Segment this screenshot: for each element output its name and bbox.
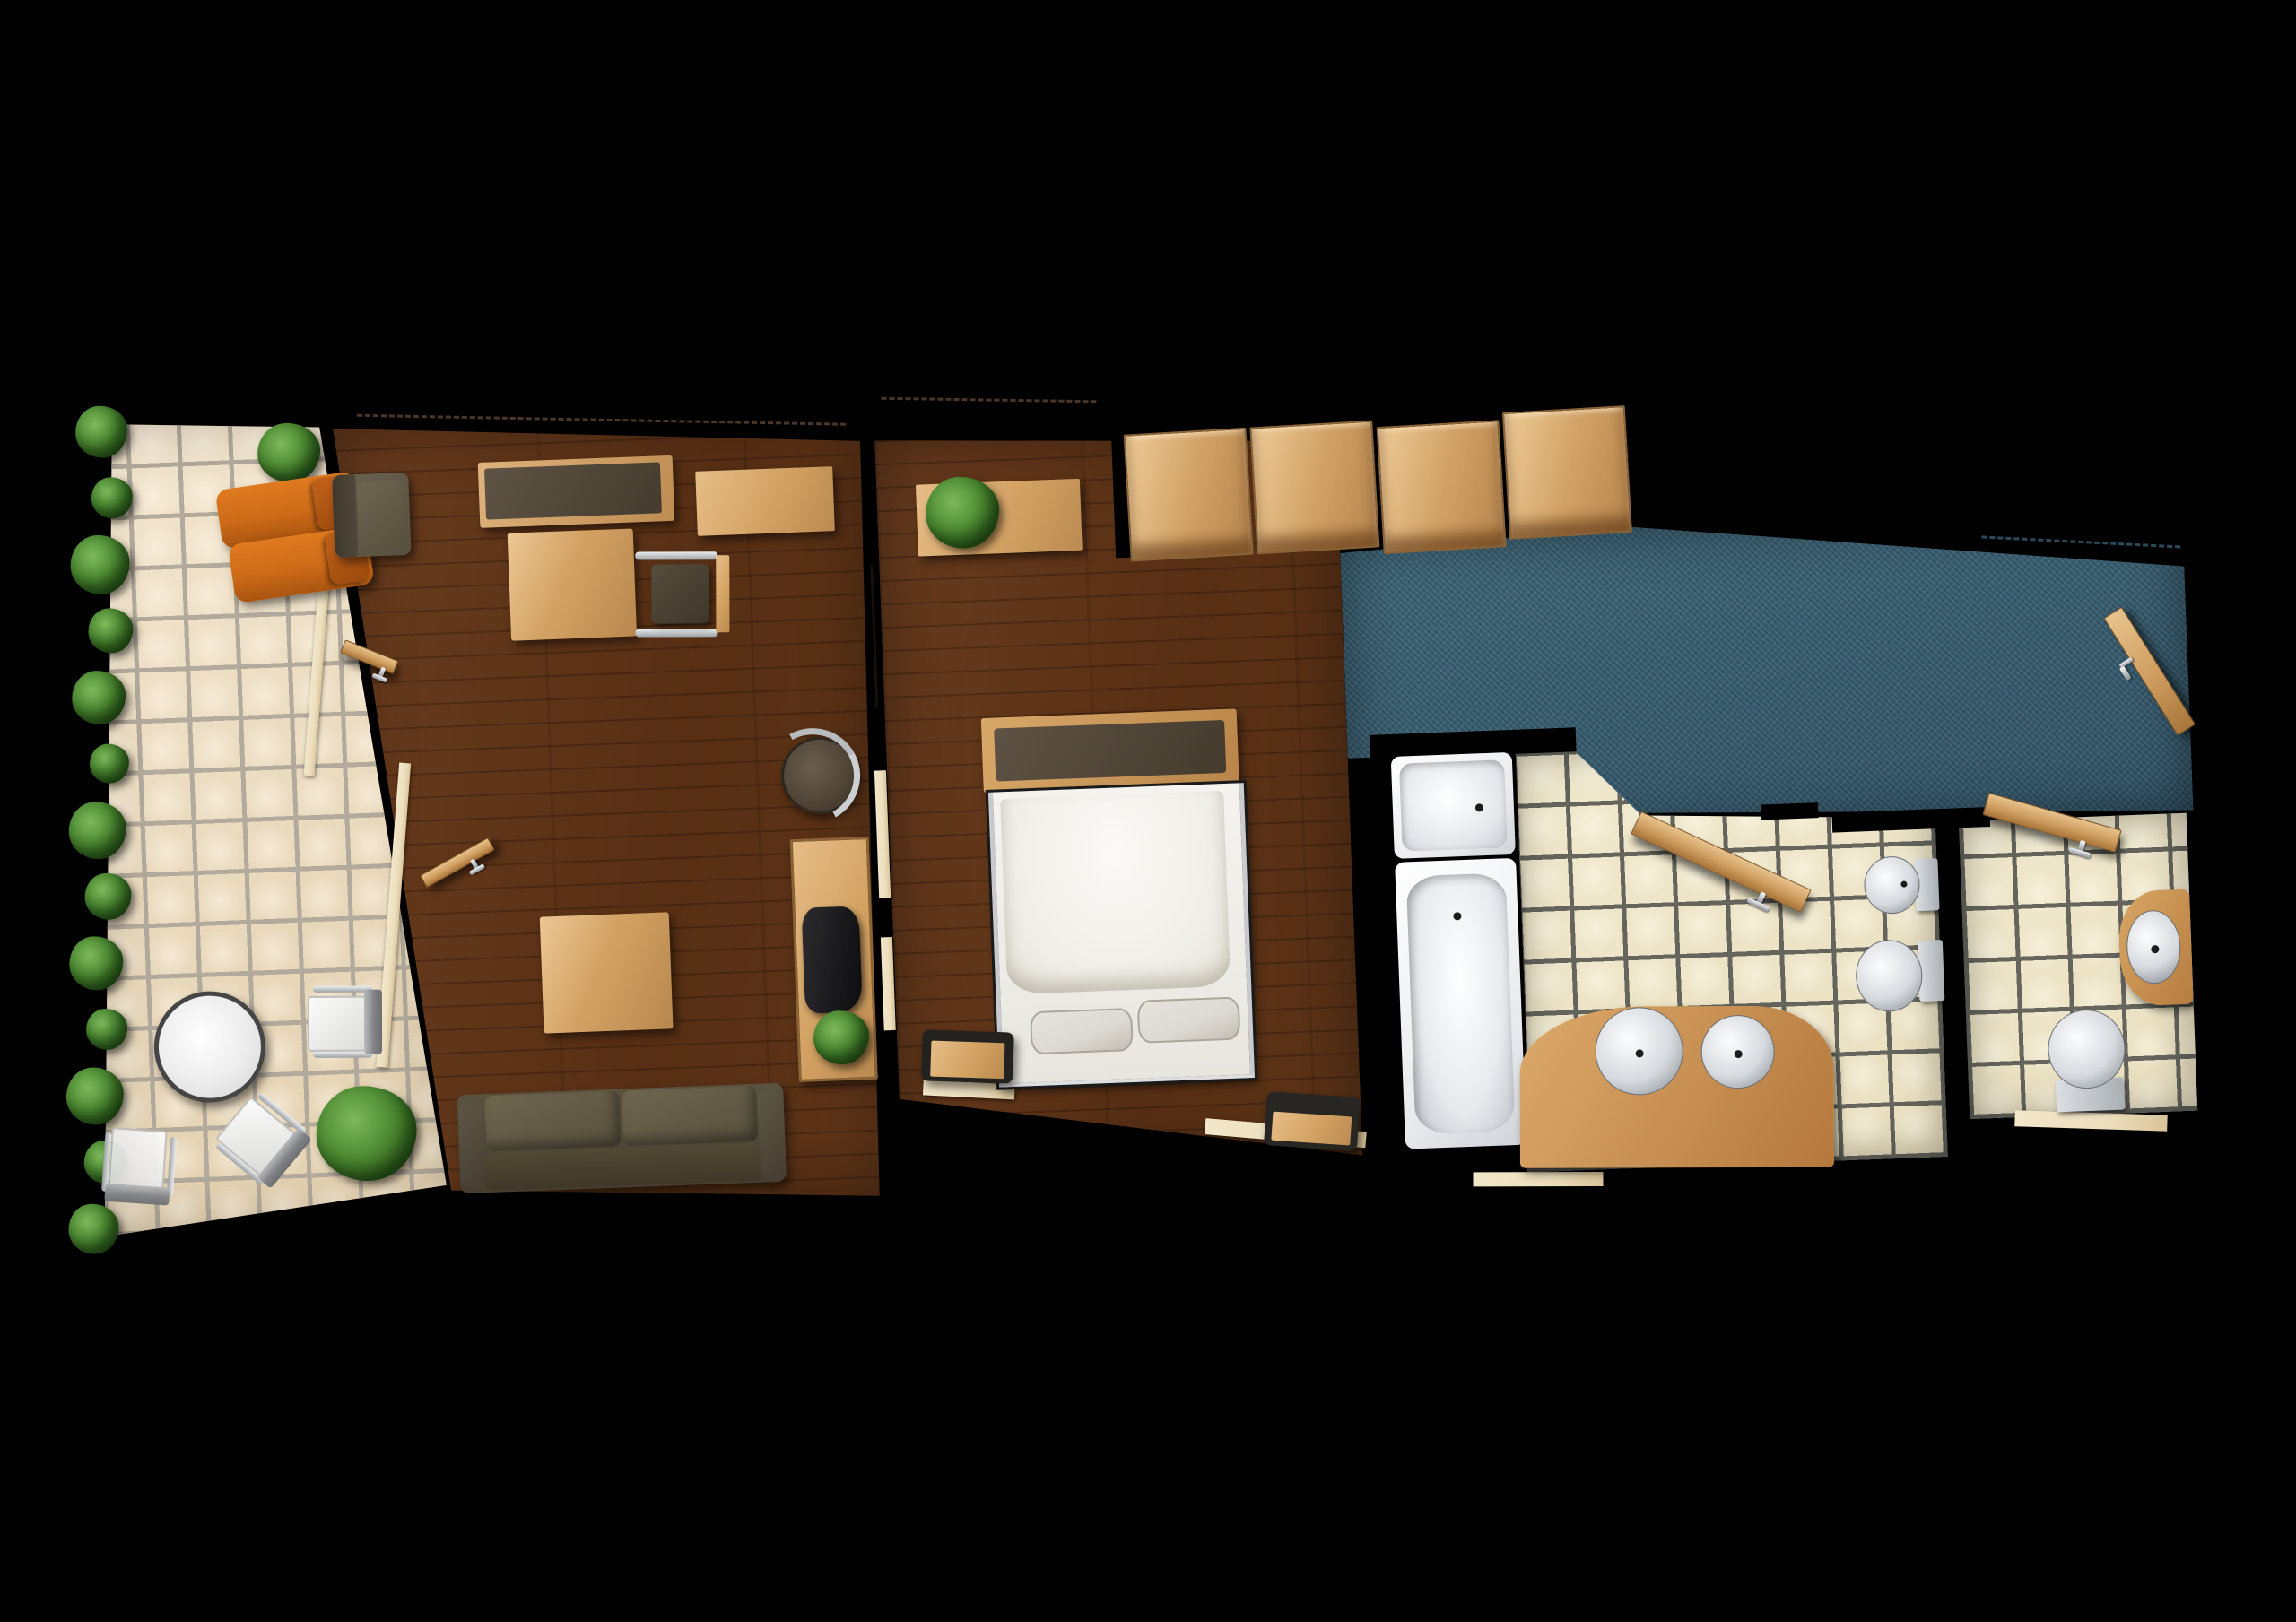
sofa — [457, 1083, 787, 1194]
desk-chair-arm — [635, 629, 717, 637]
basin-drain — [1735, 1050, 1743, 1058]
hedge-bush — [89, 743, 130, 785]
wc-threshold — [2014, 1110, 2167, 1131]
wall-partition-3 — [877, 898, 893, 938]
window-dash-bedroom — [881, 397, 1096, 403]
sliding-door-leaf-2 — [881, 937, 896, 1030]
wardrobe-door-panel — [1249, 421, 1379, 555]
wall-partition-2 — [870, 707, 887, 771]
suite-floor-plan — [61, 345, 2244, 1286]
pillow — [1137, 997, 1241, 1044]
chair-frame — [313, 986, 372, 993]
vanity-counter — [1520, 1006, 1834, 1168]
bench-top — [930, 1041, 1004, 1080]
desk-chair-backrest — [716, 555, 729, 632]
duvet — [1000, 791, 1231, 994]
tub-basin — [1406, 872, 1516, 1134]
sofa-seat-cushion — [622, 1086, 758, 1147]
wall-bathroom-top-right — [1761, 802, 1819, 820]
chair-backrest — [364, 990, 382, 1054]
chair-frame — [313, 1052, 372, 1058]
luggage-bench-left — [921, 1029, 1014, 1083]
bathtub — [1395, 858, 1526, 1149]
wardrobe-door-panel — [1124, 428, 1254, 562]
sofa-seat-cushion — [484, 1091, 621, 1152]
terrace-chair-1 — [308, 990, 393, 1054]
bench-top — [1271, 1112, 1352, 1146]
wall-shelf — [695, 466, 835, 536]
vanity-basin-2 — [1701, 1015, 1775, 1089]
coffee-table — [540, 912, 674, 1033]
chair-seat — [308, 996, 367, 1052]
shower-tray — [1391, 752, 1516, 859]
writing-desk — [508, 529, 637, 641]
wc-basin — [2126, 909, 2182, 984]
double-bed — [981, 708, 1250, 1083]
vanity-basin-1 — [1596, 1007, 1683, 1095]
sofa-backrest — [484, 1143, 762, 1192]
hedge-bush — [85, 1008, 128, 1051]
desk-chair-arm — [635, 551, 717, 559]
wardrobe-door-panel — [1502, 405, 1632, 540]
hedge-bush — [87, 608, 134, 655]
sideboard-top — [484, 462, 662, 519]
headboard-panel — [994, 720, 1226, 782]
hedge-bush — [71, 670, 126, 725]
armchair — [332, 473, 411, 558]
terrace-chair-3 — [103, 1127, 173, 1217]
sofa-armrest-left — [458, 1101, 486, 1186]
wardrobe-door-panel — [1377, 420, 1507, 554]
chair-seat — [108, 1127, 167, 1190]
hedge-bush — [74, 405, 128, 459]
desk-chair — [635, 551, 735, 637]
chair-backrest — [104, 1184, 170, 1206]
armchair-cushion — [357, 481, 404, 549]
hedge-bush — [69, 534, 130, 595]
console-cushion — [802, 906, 863, 1013]
shower-basin — [1399, 759, 1508, 851]
hedge-bush — [65, 1066, 125, 1125]
bathroom-threshold — [1473, 1172, 1603, 1186]
hedge-bush — [83, 872, 132, 921]
hedge-bush — [68, 801, 127, 860]
mattress — [988, 783, 1255, 1087]
floor-plan-canvas — [0, 0, 2296, 1622]
pillow — [1030, 1008, 1134, 1054]
window-dash-living — [357, 414, 846, 426]
partition-glass-track — [870, 564, 878, 707]
toilet-drain — [1900, 880, 1907, 887]
window-dash-corridor — [1981, 535, 2180, 548]
media-sideboard — [478, 455, 675, 528]
hedge-bush — [91, 476, 134, 519]
luggage-bench-right — [1264, 1091, 1361, 1151]
armchair-backrest — [332, 474, 358, 558]
headboard-bench — [981, 708, 1239, 793]
hedge-bush — [68, 935, 124, 991]
basin-drain — [1636, 1049, 1644, 1057]
basin-drain — [2151, 945, 2159, 953]
desk-chair-seat — [651, 564, 709, 623]
